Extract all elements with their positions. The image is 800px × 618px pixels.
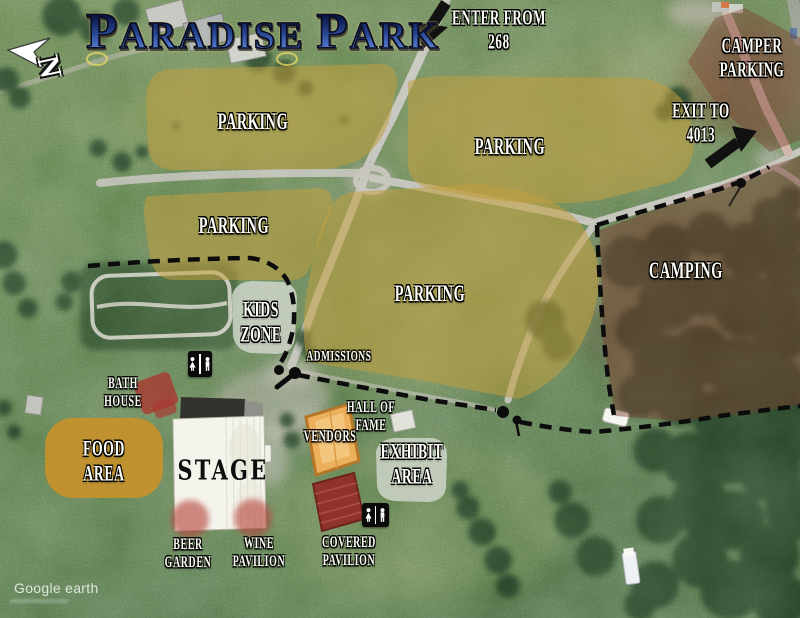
title-word-paradise: Paradise (86, 2, 304, 61)
woman-icon (188, 356, 197, 372)
parking-zone-4 (304, 184, 599, 399)
parking-zone-1 (146, 64, 397, 170)
satellite-map-background (0, 0, 800, 618)
vendors-building (306, 404, 359, 475)
exhibit-area-overlay (376, 438, 447, 502)
copyright-smudge (10, 599, 68, 603)
paradise-park-map: ParadisePark N ENTER FROM 268 CAMPER PAR… (0, 0, 800, 618)
woman-icon (364, 507, 373, 523)
man-icon (203, 356, 212, 372)
wine-pavilion-highlight (234, 499, 272, 537)
man-icon (378, 507, 387, 523)
page-title: ParadisePark (86, 2, 440, 61)
parking-zone-3 (144, 188, 332, 280)
parking-zone-2 (408, 76, 694, 204)
restrooms-icon-kids-zone (188, 351, 212, 377)
food-area-overlay (45, 418, 163, 498)
title-word-park: Park (316, 2, 440, 61)
beer-garden-highlight (171, 500, 209, 538)
restrooms-icon-pavilion (362, 503, 389, 527)
